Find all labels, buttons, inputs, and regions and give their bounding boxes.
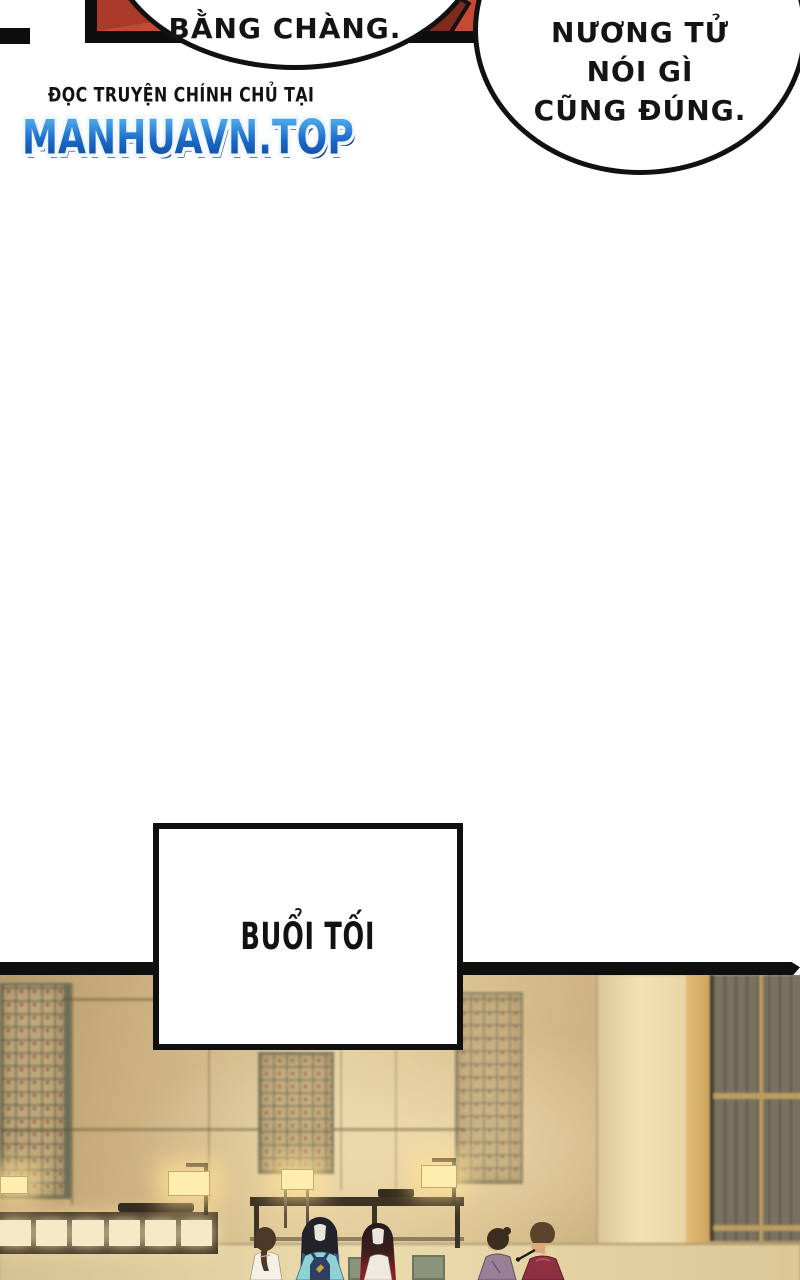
counter-glow-panels [0, 1220, 212, 1246]
lamp [421, 1165, 457, 1188]
speech-text-left: BẰNG CHÀNG. [100, 12, 470, 45]
door-rail [713, 1093, 800, 1099]
speech-line-3: CŨNG ĐÚNG. [478, 91, 800, 130]
pillar [596, 975, 690, 1245]
wall-seam [395, 1050, 397, 1190]
divider-bar-left [0, 962, 157, 975]
lamp [168, 1171, 210, 1196]
figure-woman-white-robe [250, 1227, 282, 1280]
figures-group [230, 1215, 580, 1280]
figure-man-red-robe-pipe [516, 1222, 564, 1280]
counter-left [0, 1212, 218, 1254]
counter-items [378, 1189, 414, 1197]
door-rail [713, 1225, 800, 1231]
speech-line-2: NÓI GÌ [478, 52, 800, 91]
divider-bar-right [459, 962, 800, 975]
lit-door-edge [686, 975, 710, 1243]
figure-woman-red-hair [360, 1223, 396, 1280]
wall-seam [71, 983, 73, 1205]
lattice-window-center [258, 1052, 334, 1174]
watermark-site-text: MANHUAVN.TOP [22, 110, 354, 165]
door-frame [759, 975, 763, 1241]
caption-box: BUỔI TỐI [153, 823, 463, 1050]
lamp [0, 1176, 28, 1194]
wooden-doors [710, 975, 800, 1241]
speech-bubble-right: NƯƠNG TỬ NÓI GÌ CŨNG ĐÚNG. [473, 0, 800, 175]
comic-page: BẰNG CHÀNG. NƯƠNG TỬ NÓI GÌ CŨNG ĐÚNG. Đ… [0, 0, 800, 1280]
figure-person-purple-robe [478, 1227, 516, 1280]
watermark-tagline: ĐỌC TRUYỆN CHÍNH CHỦ TẠI [48, 84, 314, 107]
lattice-window-right [455, 992, 523, 1184]
figure-man-teal-robe [296, 1217, 344, 1280]
speech-line-1: NƯƠNG TỬ [478, 13, 800, 52]
watermark-site-logo: MANHUAVN.TOP MANHUAVN.TOP [22, 110, 354, 165]
lamp [281, 1169, 314, 1190]
counter-center-top [250, 1197, 464, 1206]
lattice-window-left [0, 983, 71, 1199]
counter-items [118, 1203, 194, 1212]
caption-text: BUỔI TỐI [241, 915, 376, 959]
wall-seam [340, 1050, 342, 1190]
speech-text-right: NƯƠNG TỬ NÓI GÌ CŨNG ĐÚNG. [478, 13, 800, 130]
left-edge-panel-border [0, 28, 30, 44]
speech-bubble-left: BẰNG CHÀNG. [105, 0, 485, 70]
